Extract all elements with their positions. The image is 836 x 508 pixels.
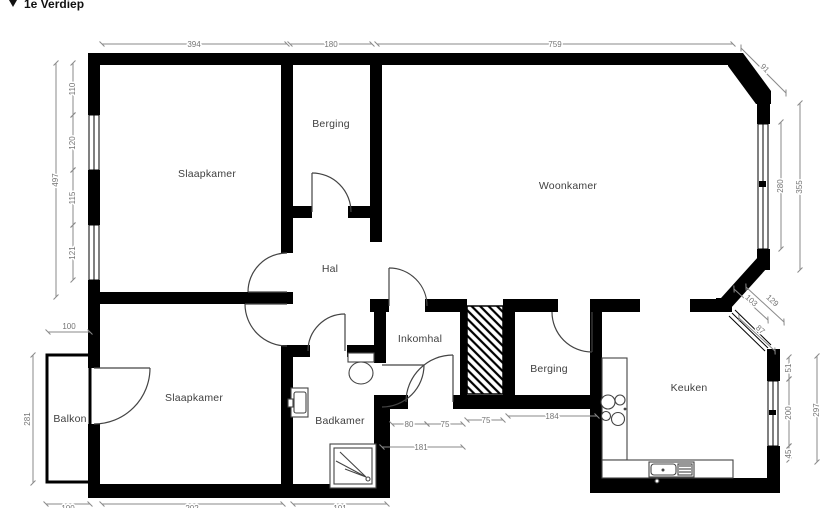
dim-badkamer-door: 80 (405, 420, 414, 429)
door-hal-inkomhal (389, 268, 427, 306)
room-label-berging-top: Berging (312, 118, 350, 130)
window-slaapkamer-top-lower (89, 225, 99, 280)
dim-keuken-window: 200 (784, 406, 793, 420)
shaft-hatch (467, 306, 503, 394)
dim-diag-a: 103 (743, 293, 759, 309)
dim-inkomhal-width: 181 (414, 443, 428, 452)
walls (88, 53, 780, 498)
dim-bottom-center: 202 (185, 504, 199, 508)
dim-balkon-width: 100 (62, 322, 76, 331)
dimension-lines (31, 42, 820, 507)
collapse-triangle-icon[interactable] (9, 0, 17, 7)
door-berging-top (312, 173, 351, 212)
shower (330, 444, 376, 488)
dim-bay-window: 280 (776, 179, 785, 193)
dimension-labels: 394 180 759 91 497 110 120 115 121 100 2… (23, 40, 821, 508)
bathroom-sink (288, 388, 308, 417)
dim-bay-total: 355 (795, 180, 804, 194)
room-label-keuken: Keuken (671, 382, 708, 394)
door-badkamer-hal (308, 314, 345, 351)
dim-keuken-seg-bottom: 45 (784, 449, 793, 458)
dim-keuken-seg-top: 51 (784, 363, 793, 372)
floorplan-page: 1e Verdiep (0, 0, 836, 508)
door-balkon (94, 368, 150, 424)
door-slaapkamer-top (248, 253, 287, 292)
dim-bay-corner: 91 (758, 62, 771, 75)
toilet (348, 353, 374, 384)
door-entrance (406, 355, 453, 402)
dim-keuken-total: 297 (812, 403, 821, 417)
dim-left-total: 497 (51, 173, 60, 187)
dim-left-seg-mid: 115 (68, 191, 77, 204)
dim-left-seg-top: 110 (68, 82, 77, 95)
dim-berging-width: 184 (545, 412, 559, 421)
dim-left-window-bottom: 121 (68, 246, 77, 260)
floor-title[interactable]: 1e Verdiep (9, 0, 84, 11)
room-label-woonkamer: Woonkamer (539, 180, 598, 192)
room-label-badkamer: Badkamer (315, 415, 365, 427)
window-slaapkamer-top-upper (89, 115, 99, 170)
dim-top-berging: 180 (324, 40, 338, 49)
floor-title-label: 1e Verdiep (24, 0, 84, 11)
door-slaapkamer-bottom (245, 304, 287, 346)
floorplan-canvas: 1e Verdiep (0, 0, 836, 508)
dim-bottom-left: 100 (61, 504, 75, 508)
dim-left-window-top: 120 (68, 136, 77, 150)
dim-top-slaapkamer: 394 (187, 40, 201, 49)
dim-balkon-depth: 281 (23, 412, 32, 426)
dim-shaft-75: 75 (482, 416, 491, 425)
room-label-hal: Hal (322, 263, 338, 275)
dim-diag-window: 87 (754, 323, 767, 336)
room-label-balkon: Balkon (53, 413, 86, 425)
dim-seg-75a: 75 (441, 420, 450, 429)
door-berging-bottom (552, 312, 592, 352)
dim-bottom-right: 101 (333, 504, 347, 508)
window-keuken-right (768, 381, 778, 446)
room-label-slaapkamer-top: Slaapkamer (178, 168, 236, 180)
room-label-inkomhal: Inkomhal (398, 333, 442, 345)
dim-top-woonkamer: 759 (548, 40, 562, 49)
room-label-berging-bottom: Berging (530, 363, 568, 375)
room-label-slaapkamer-bottom: Slaapkamer (165, 392, 223, 404)
window-woonkamer-bay (758, 124, 768, 249)
